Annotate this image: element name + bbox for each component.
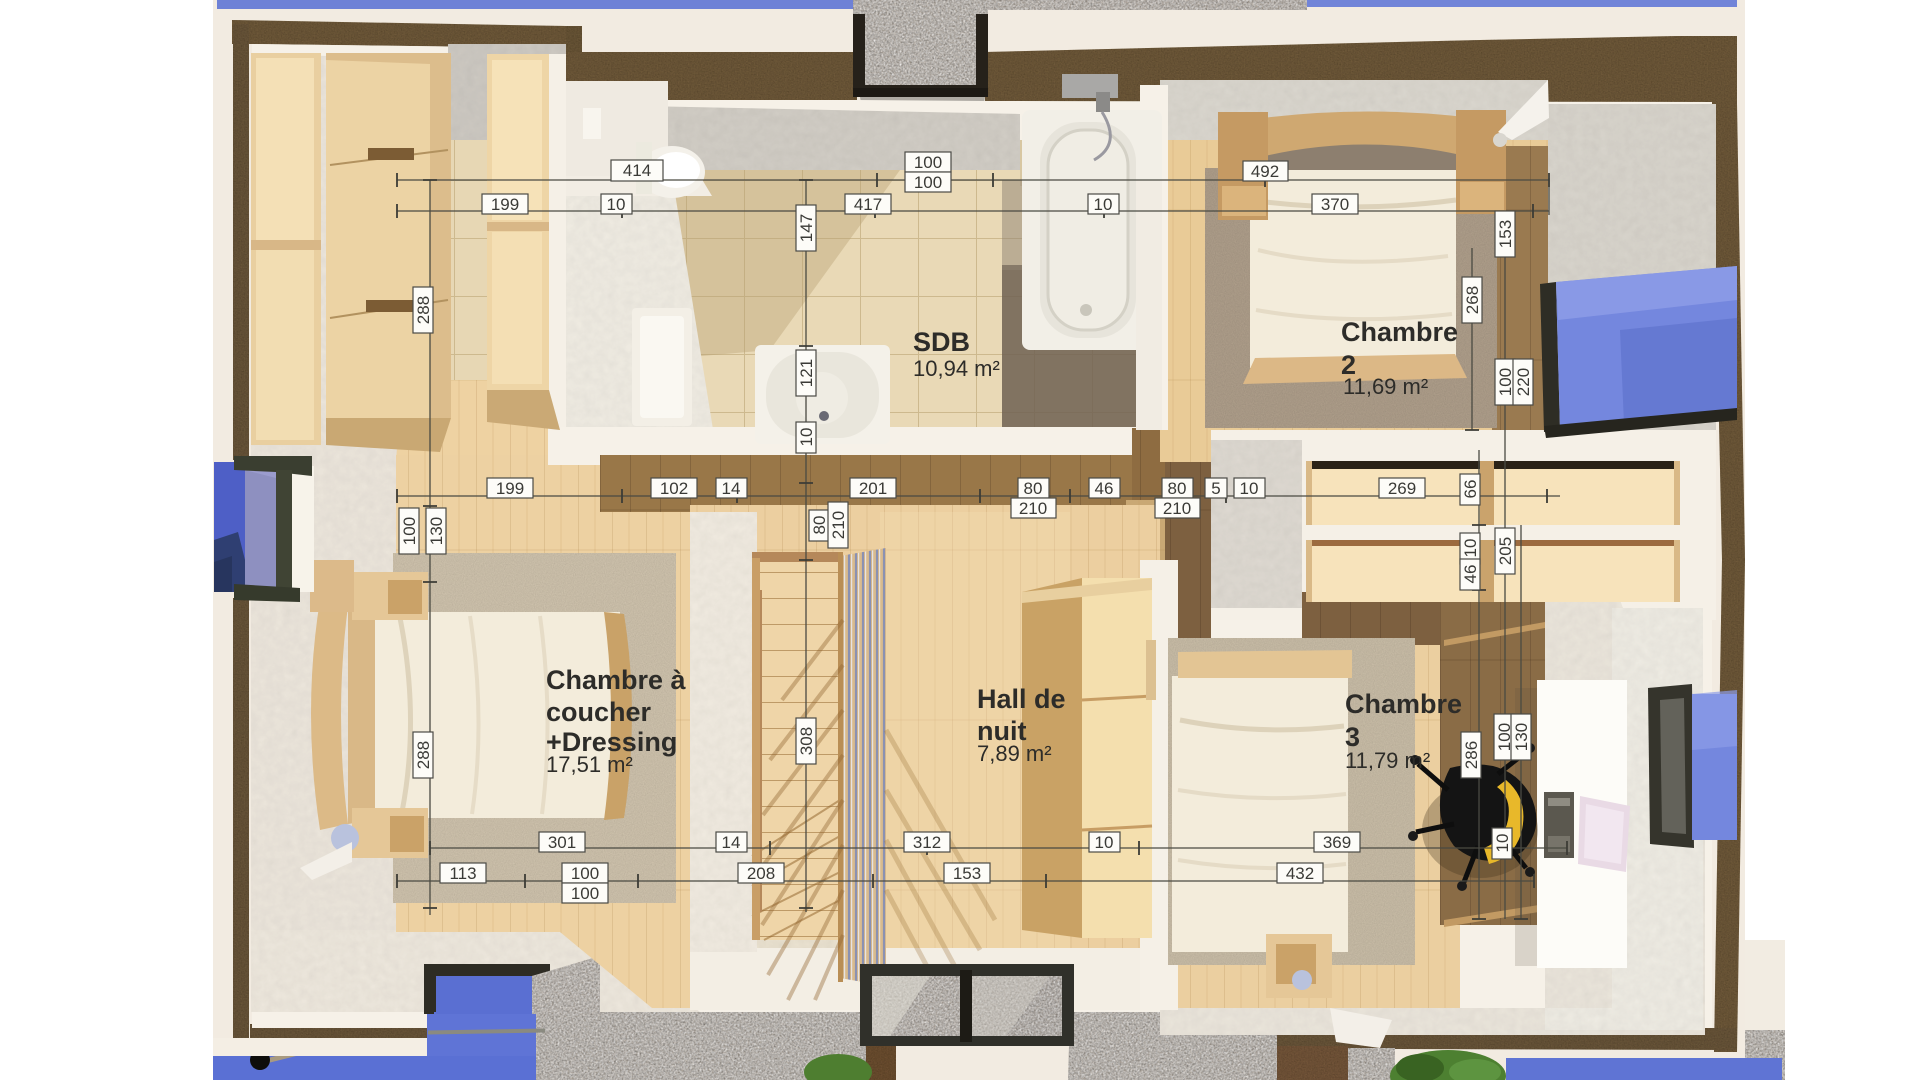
svg-text:11,79 m²: 11,79 m²	[1345, 748, 1430, 773]
svg-text:269: 269	[1388, 479, 1416, 498]
svg-text:80: 80	[1024, 479, 1043, 498]
svg-text:10,94 m²: 10,94 m²	[913, 356, 1000, 381]
svg-text:14: 14	[722, 833, 741, 852]
svg-text:130: 130	[427, 517, 446, 545]
svg-text:80: 80	[1168, 479, 1187, 498]
svg-text:370: 370	[1321, 195, 1349, 214]
svg-text:210: 210	[1019, 499, 1047, 518]
svg-text:153: 153	[953, 864, 981, 883]
svg-text:10: 10	[607, 195, 626, 214]
svg-text:210: 210	[1163, 499, 1191, 518]
svg-text:10: 10	[1493, 834, 1512, 853]
svg-text:147: 147	[797, 214, 816, 242]
svg-text:130: 130	[1512, 723, 1531, 751]
svg-text:286: 286	[1462, 741, 1481, 769]
svg-text:208: 208	[747, 864, 775, 883]
svg-text:100: 100	[400, 517, 419, 545]
svg-text:417: 417	[854, 195, 882, 214]
svg-text:46: 46	[1461, 565, 1480, 584]
svg-text:153: 153	[1496, 220, 1515, 248]
svg-text:10: 10	[1461, 539, 1480, 558]
svg-text:10: 10	[1240, 479, 1259, 498]
svg-text:46: 46	[1095, 479, 1114, 498]
svg-text:113: 113	[449, 864, 476, 883]
svg-text:SDB: SDB	[913, 327, 970, 357]
svg-text:100: 100	[571, 864, 599, 883]
svg-text:210: 210	[829, 511, 848, 539]
svg-text:66: 66	[1461, 480, 1480, 499]
svg-text:Hall de: Hall de	[977, 684, 1066, 714]
svg-text:268: 268	[1463, 286, 1482, 314]
svg-text:80: 80	[810, 516, 829, 535]
svg-text:5: 5	[1211, 479, 1220, 498]
svg-text:17,51 m²: 17,51 m²	[546, 752, 633, 777]
svg-text:492: 492	[1251, 162, 1279, 181]
svg-text:Chambre: Chambre	[1341, 317, 1458, 347]
svg-text:432: 432	[1286, 864, 1314, 883]
svg-text:11,69 m²: 11,69 m²	[1343, 374, 1428, 399]
svg-text:100: 100	[914, 173, 942, 192]
svg-text:301: 301	[548, 833, 576, 852]
svg-text:coucher: coucher	[546, 697, 652, 727]
svg-text:312: 312	[913, 833, 941, 852]
svg-text:10: 10	[1095, 833, 1114, 852]
svg-text:7,89 m²: 7,89 m²	[977, 741, 1052, 766]
svg-text:102: 102	[660, 479, 688, 498]
svg-text:308: 308	[797, 727, 816, 755]
svg-text:414: 414	[623, 161, 651, 180]
svg-text:121: 121	[797, 359, 816, 387]
svg-text:100: 100	[914, 153, 942, 172]
svg-text:10: 10	[797, 428, 816, 447]
svg-text:288: 288	[414, 296, 433, 324]
svg-text:100: 100	[571, 884, 599, 903]
svg-text:201: 201	[859, 479, 887, 498]
svg-text:100: 100	[1496, 368, 1515, 396]
svg-text:Chambre: Chambre	[1345, 689, 1462, 719]
svg-text:220: 220	[1514, 368, 1533, 396]
svg-text:199: 199	[496, 479, 524, 498]
svg-text:Chambre à: Chambre à	[546, 665, 687, 695]
svg-text:199: 199	[491, 195, 519, 214]
svg-text:205: 205	[1496, 537, 1515, 565]
svg-text:10: 10	[1094, 195, 1113, 214]
svg-text:14: 14	[722, 479, 741, 498]
svg-text:288: 288	[414, 741, 433, 769]
svg-text:369: 369	[1323, 833, 1351, 852]
